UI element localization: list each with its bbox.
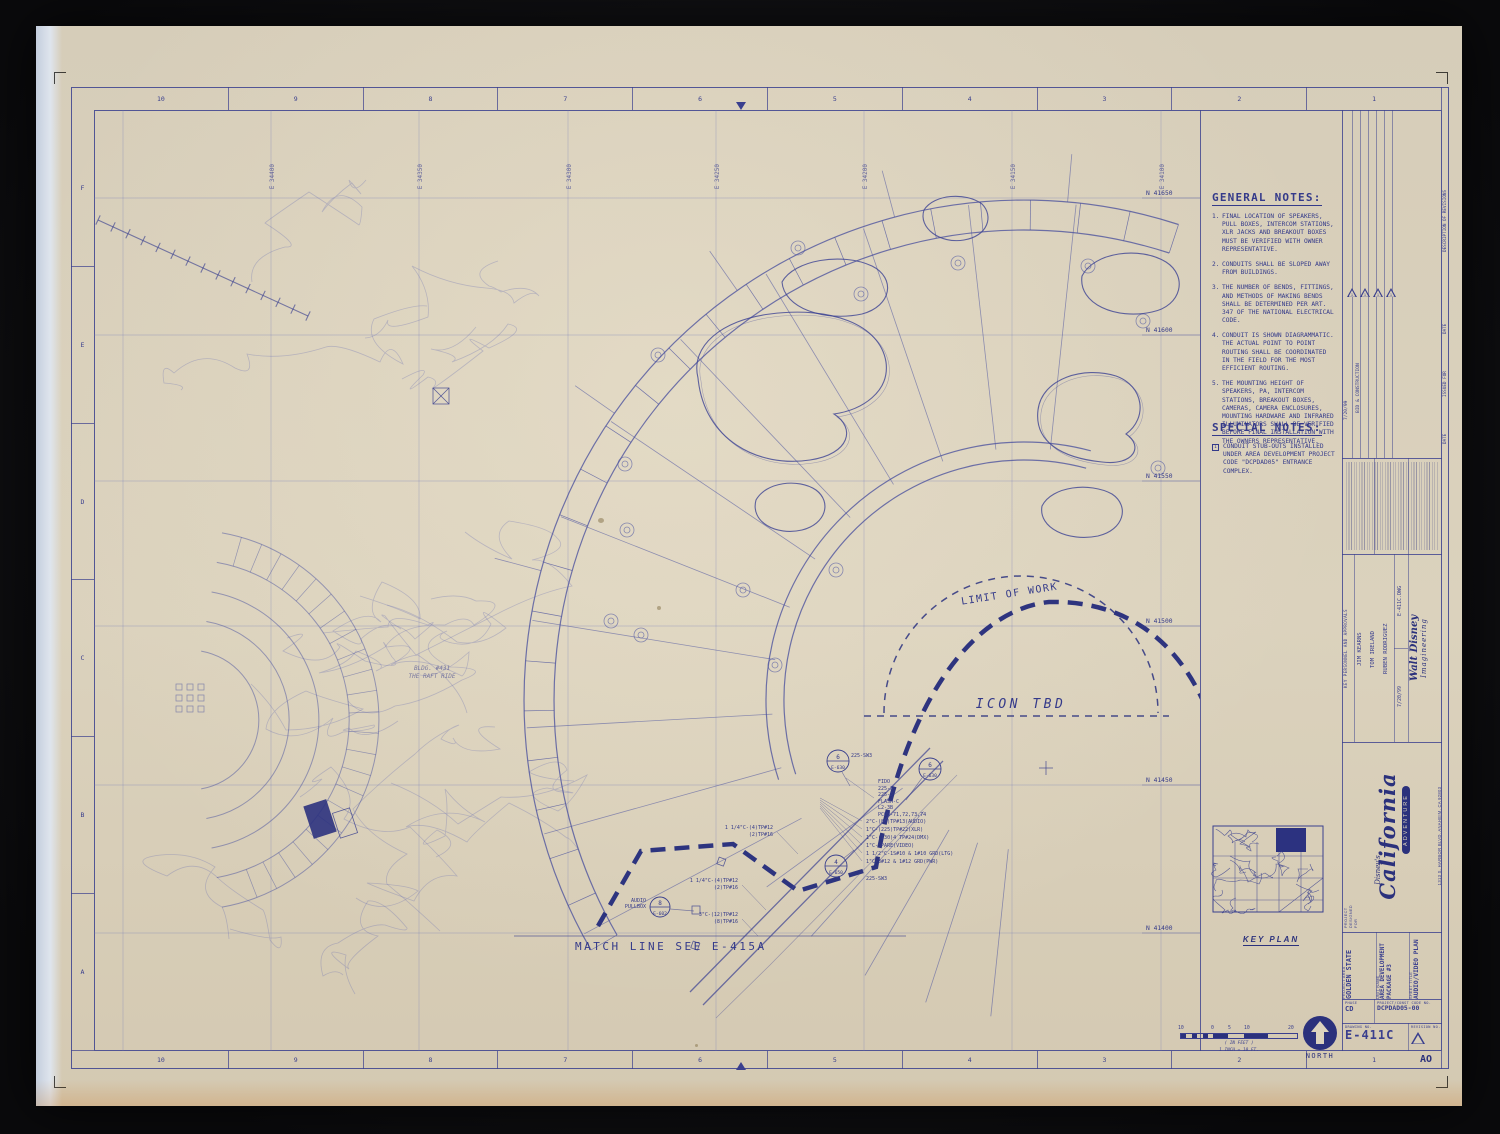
sheet-size-label: AO	[1420, 1054, 1432, 1065]
sheet-title-field: SHEET TITLE AUDIO/VIDEO PLAN	[1409, 932, 1442, 999]
grid-number: 6	[633, 1051, 768, 1069]
grid-number: 10	[94, 1051, 229, 1069]
grid-number: 6	[633, 87, 768, 110]
special-notes: SPECIAL NOTES: 1 CONDUIT STUB-OUTS INSTA…	[1212, 416, 1336, 483]
revision-delta: 1	[1373, 288, 1383, 297]
revision-number-field: REVISION NO.	[1411, 1025, 1441, 1048]
building-label: BLDG. #431	[414, 665, 450, 672]
revision-delta: 1	[1347, 288, 1357, 297]
svg-text:E-650: E-650	[829, 870, 843, 876]
svg-text:1 1/4"C-(4)TP#12: 1 1/4"C-(4)TP#12	[725, 825, 773, 831]
wdi-logo: Walt DisneyImagineering	[1410, 556, 1442, 740]
key-plan-map	[1210, 818, 1332, 922]
svg-text:225-5: 225-5	[878, 792, 893, 798]
note-item: 2.CONDUITS SHALL BE SLOPED AWAY FROM BUI…	[1212, 261, 1336, 277]
svg-text:1"C-(225)TP#22(XLR): 1"C-(225)TP#22(XLR)	[866, 827, 923, 833]
svg-text:1"C-3#12 & 1#12 GRD(PWR): 1"C-3#12 & 1#12 GRD(PWR)	[866, 859, 938, 865]
svg-text:6: 6	[928, 762, 932, 769]
limit-of-work-line	[598, 602, 1200, 926]
rockwork-blobs	[697, 196, 1179, 537]
svg-text:1 1/4"C-(4)TP#12: 1 1/4"C-(4)TP#12	[690, 878, 738, 884]
building-label: THE RAFT RIDE	[409, 673, 456, 680]
tree-symbols	[604, 241, 1165, 672]
drawing-file: E-411C.DWG	[1397, 558, 1403, 644]
brand-block: PROJECT DESIGNED FOR Disney's California…	[1342, 742, 1442, 930]
revision-delta: 1	[1386, 288, 1396, 297]
phase-field: PHASE CD	[1345, 1001, 1373, 1013]
grid-number: 4	[903, 87, 1038, 110]
section-divider	[1342, 999, 1442, 1000]
grid-letter: F	[71, 110, 94, 267]
note-item: 1 CONDUIT STUB-OUTS INSTALLED UNDER AREA…	[1212, 443, 1336, 476]
park-address: 1313 S. HARBOR BLVD. ANAHEIM, CA 92803	[1437, 742, 1442, 930]
unit-name-field: UNIT NAME AREA DEVELOPMENT PACKAGE #3	[1376, 932, 1409, 999]
svg-text:N 41400: N 41400	[1146, 925, 1173, 932]
svg-text:(2)TP#16: (2)TP#16	[714, 885, 738, 891]
scale-ticks: 10 0 5 10 20	[1180, 1026, 1298, 1033]
personnel-header: KEY PERSONNEL AND APPROVALS	[1343, 560, 1348, 738]
svg-text:1"C-SPARE(VIDEO): 1"C-SPARE(VIDEO)	[866, 843, 914, 849]
personnel-name: RUBEN RODRIGUEZ	[1383, 562, 1389, 736]
svg-text:(8)TP#16: (8)TP#16	[714, 919, 738, 925]
equipment-list-callout: FIDO 225-3 225-5 FLASH-C L2-3B PCOM-71,7…	[846, 778, 926, 818]
section-divider	[1342, 458, 1442, 459]
note-item: 4.CONDUIT IS SHOWN DIAGRAMMATIC. THE ACT…	[1212, 332, 1336, 373]
site-plan: N 41650 N 41600 N 41550 N 41500 N 41450 …	[94, 110, 1200, 1051]
date-header: DATE	[1443, 424, 1448, 454]
svg-text:1"C-(130)4 TP#24(DMX): 1"C-(130)4 TP#24(DMX)	[866, 835, 929, 841]
grid-number: 5	[768, 87, 903, 110]
grid-letter: A	[71, 894, 94, 1051]
corner-mark	[1436, 72, 1448, 84]
top-grid-numbers: 10 9 8 7 6 5 4 3 2 1	[94, 87, 1442, 110]
key-plan: KEY PLAN	[1210, 818, 1332, 944]
svg-text:PCOM-71,72,73,74: PCOM-71,72,73,74	[878, 812, 926, 818]
svg-text:3"C-(12)TP#12: 3"C-(12)TP#12	[699, 912, 738, 918]
grid-number: 9	[229, 1051, 364, 1069]
corner-mark	[1436, 1076, 1448, 1088]
project-area-field: PROJECT AREA GOLDEN STATE	[1342, 932, 1376, 999]
sunburst-paving	[495, 154, 1076, 1016]
svg-text:E-630: E-630	[923, 773, 937, 779]
paper-stain	[657, 606, 661, 610]
grid-number: 4	[903, 1051, 1038, 1069]
plaza-colonnade	[524, 200, 1178, 950]
issued-for-header: ISSUED FOR	[1443, 356, 1448, 412]
svg-text:N 41500: N 41500	[1146, 618, 1173, 625]
bottom-grid-numbers: 10 9 8 7 6 5 4 3 2 1	[94, 1051, 1442, 1069]
match-line-label: MATCH LINE SEE E-415A	[575, 940, 767, 953]
svg-text:2"C-(80)TP#13(AUDIO): 2"C-(80)TP#13(AUDIO)	[866, 819, 926, 825]
north-arrow-icon	[1303, 1016, 1337, 1050]
grid-number: 2	[1172, 1051, 1307, 1069]
blueprint-photo: 10 9 8 7 6 5 4 3 2 1 10 9 8 7 6 5 4 3 2 …	[0, 0, 1500, 1134]
northing-labels: N 41650 N 41600 N 41550 N 41500 N 41450 …	[1142, 190, 1200, 933]
blueprint-sheet: 10 9 8 7 6 5 4 3 2 1 10 9 8 7 6 5 4 3 2 …	[36, 26, 1462, 1106]
section-divider	[1342, 554, 1442, 555]
binding-edge	[36, 26, 62, 1106]
grid-number: 9	[229, 87, 364, 110]
grid-number: 1	[1307, 87, 1442, 110]
current-sheet-marker	[1276, 828, 1306, 852]
general-notes-title: GENERAL NOTES:	[1212, 191, 1322, 206]
grid-number: 7	[498, 87, 633, 110]
general-notes: GENERAL NOTES: 1.FINAL LOCATION OF SPEAK…	[1212, 186, 1336, 453]
scale-caption: 1 INCH = 10 FT.	[1180, 1048, 1298, 1053]
north-arrow: NORTH	[1300, 1016, 1340, 1060]
svg-text:225-SW3: 225-SW3	[866, 876, 887, 882]
grid-number: 10	[94, 87, 229, 110]
scale-caption: ( IN FEET )	[1180, 1041, 1298, 1046]
revision-date: 7/20/99	[1344, 366, 1349, 454]
notes-divider	[1200, 110, 1201, 1051]
revision-triangle	[1411, 1032, 1425, 1044]
left-grid-letters: F E D C B A	[71, 110, 94, 1051]
revisions-header: DESCRIPTION OF REVISIONS	[1443, 136, 1448, 306]
survey-grid	[94, 110, 1200, 1051]
paper-stain	[695, 1044, 698, 1047]
grid-number: 8	[364, 87, 499, 110]
note-item: 3.THE NUMBER OF BENDS, FITTINGS, AND MET…	[1212, 284, 1336, 325]
grid-number: 2	[1172, 87, 1307, 110]
revision-entry: BID & CONSTRUCTION	[1356, 322, 1361, 454]
svg-text:N 41600: N 41600	[1146, 327, 1173, 334]
svg-text:4: 4	[834, 859, 838, 866]
grid-number: 3	[1038, 1051, 1173, 1069]
icon-tbd-label: ICON TBD	[976, 697, 1067, 712]
svg-text:N 41650: N 41650	[1146, 190, 1173, 197]
svg-text:6: 6	[836, 754, 840, 761]
svg-text:(2)TP#16: (2)TP#16	[749, 832, 773, 838]
scale-bar: 10 0 5 10 20 ( IN FEET ) 1 INCH = 10 FT.	[1180, 1026, 1298, 1053]
drawing-date: 7/20/99	[1397, 654, 1403, 738]
svg-text:8: 8	[658, 900, 662, 907]
designed-for-label: PROJECT DESIGNED FOR	[1344, 920, 1359, 928]
drawing-number-field: DRAWING NO. E-411C	[1345, 1025, 1407, 1043]
riser-callouts: 1 1/4"C-(4)TP#12 (2)TP#16 1 1/4"C-(4)TP#…	[625, 753, 887, 936]
corner-mark	[54, 72, 66, 84]
grid-number: 8	[364, 1051, 499, 1069]
grid-number: 5	[768, 1051, 903, 1069]
svg-text:FIDO: FIDO	[878, 779, 890, 785]
svg-text:N 41550: N 41550	[1146, 473, 1173, 480]
svg-text:E-630: E-630	[831, 765, 845, 771]
svg-text:225-SW3: 225-SW3	[851, 753, 872, 759]
svg-text:PULLBOX: PULLBOX	[625, 904, 646, 910]
contour-lines	[143, 180, 587, 994]
revision-delta: 1	[1360, 288, 1370, 297]
grid-letter: B	[71, 737, 94, 894]
paper-stain	[598, 518, 604, 523]
personnel-name: TOM IRELAND	[1370, 562, 1376, 736]
grid-letter: D	[71, 424, 94, 581]
equipment-bubble-1: 6 E-630	[827, 750, 850, 786]
key-plan-label: KEY PLAN	[1210, 935, 1332, 944]
section-divider	[1342, 1023, 1442, 1024]
scale-bar-graphic	[1180, 1033, 1298, 1039]
grid-letter: E	[71, 267, 94, 424]
code-field: PROJECT/CONST CODE NO. DCPDAD05-00	[1377, 1001, 1441, 1012]
grid-number: 3	[1038, 87, 1173, 110]
svg-text:L2-3B: L2-3B	[878, 805, 893, 811]
special-notes-title: SPECIAL NOTES:	[1212, 421, 1322, 436]
personnel-name: JIM KEARNS	[1357, 562, 1363, 736]
pullbox-symbol	[433, 388, 449, 404]
fence-line	[96, 215, 310, 320]
notices-microprint	[1346, 462, 1438, 550]
pullbox-bubble: 8 E-602	[650, 897, 700, 917]
raft-ride-curves	[176, 533, 379, 907]
north-label: NORTH	[1300, 1052, 1340, 1060]
date-header: DATE	[1443, 314, 1448, 344]
note-item: 1.FINAL LOCATION OF SPEAKERS, PULL BOXES…	[1212, 213, 1336, 254]
corner-mark	[54, 1076, 66, 1088]
california-adventure-logo: Disney's California ADVENTURE	[1369, 772, 1416, 899]
svg-text:E-602: E-602	[653, 911, 667, 917]
svg-text:N 41450: N 41450	[1146, 777, 1173, 784]
svg-text:1 1/2"C-1S#10 & 1#10 GRD(LTG): 1 1/2"C-1S#10 & 1#10 GRD(LTG)	[866, 851, 953, 857]
grid-number: 7	[498, 1051, 633, 1069]
grid-letter: C	[71, 580, 94, 737]
